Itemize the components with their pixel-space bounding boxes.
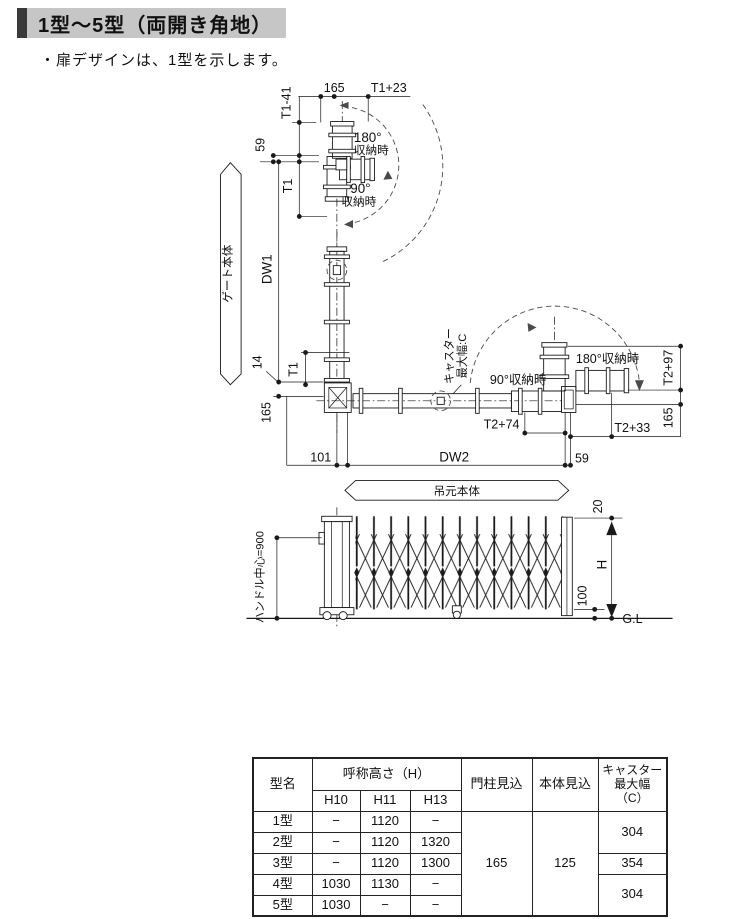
sub-header-h11: H11 (360, 790, 410, 811)
corner-post-plan (324, 383, 351, 413)
header-accent-bar (17, 8, 27, 38)
caster-label-line1: キャスター (443, 328, 456, 384)
body-depth-value: 125 (532, 811, 598, 916)
dim-14: 14 (251, 355, 265, 369)
caster-width-value: 304 (598, 811, 667, 853)
dim-165-left: 165 (260, 402, 274, 423)
h10-value: − (312, 832, 360, 853)
h11-value: − (360, 895, 410, 916)
col-header-body-depth: 本体見込 (532, 758, 598, 811)
hinge-body-banner: 吊元本体 (345, 480, 569, 500)
dim-dw1: DW1 (260, 254, 275, 284)
caster-width-value: 354 (598, 853, 667, 874)
h10-value: − (312, 811, 360, 832)
handle-icon (319, 532, 324, 544)
model-name: 1型 (253, 811, 312, 832)
model-name: 5型 (253, 895, 312, 916)
h13-value: 1320 (410, 832, 461, 853)
dim-20: 20 (591, 499, 605, 513)
header-bar: 1型～5型（両開き角地） (27, 8, 286, 38)
caster-header-line2: 最大幅 (614, 777, 650, 791)
col-header-height: 呼称高さ（H） (312, 758, 461, 790)
sub-header-h13: H13 (410, 790, 461, 811)
h10-value: 1030 (312, 895, 360, 916)
gate-body-label: ゲート本体 (220, 244, 234, 303)
dim-h: H (594, 560, 609, 570)
sub-header-h10: H10 (312, 790, 360, 811)
right-corner-mechanism: 90°収納時 180°収納時 (490, 317, 640, 394)
dim-t1plus23: T1+23 (371, 81, 407, 95)
caster-max-width-label: キャスター 最大幅:C (443, 328, 469, 394)
dim-165-top: 165 (324, 81, 345, 95)
label-180-stored-right: 180°収納時 (576, 352, 640, 366)
h11-value: 1120 (360, 832, 410, 853)
page-title: 1型～5型（両開き角地） (38, 9, 272, 38)
gate-lattice (355, 534, 561, 607)
dim-101: 101 (310, 451, 331, 465)
dim-t1minus41: T1-41 (279, 86, 293, 119)
elevation-view: ハンドル中心=900 20 H 100 G.L (246, 499, 672, 629)
hinge-body-label: 吊元本体 (434, 484, 481, 498)
h11-value: 1120 (360, 811, 410, 832)
dim-100: 100 (576, 585, 590, 606)
dim-t2plus74: T2+74 (484, 418, 520, 432)
dim-t2plus97: T2+97 (662, 350, 676, 386)
dim-chain-t2: T2+74 T2+33 (484, 393, 681, 439)
label-90-stored-top: 90° (350, 181, 370, 196)
section-header: 1型～5型（両開き角地） (17, 8, 286, 38)
h10-value: 1030 (312, 874, 360, 895)
dim-t1-lower: T1 (286, 362, 300, 377)
dim-handle-center: ハンドル中心=900 (253, 531, 266, 623)
dim-chain-top: 165 T1+23 (298, 81, 410, 122)
top-corner-mechanism: 180° 収納時 90° 収納時 (323, 101, 389, 248)
dim-59-right: 59 (575, 452, 589, 466)
dim-dw2: DW2 (439, 450, 469, 465)
table-row: 3型 − 1120 1300 354 (253, 853, 667, 874)
catalog-page: 1型～5型（両開き角地） ・扉デザインは、1型を示します。 (0, 0, 740, 919)
caster-label-line2: 最大幅:C (455, 334, 469, 379)
h13-value: − (410, 811, 461, 832)
design-note: ・扉デザインは、1型を示します。 (40, 49, 288, 70)
caster-header-line3: （C） (616, 791, 649, 805)
dim-165-right: 165 (662, 407, 676, 428)
dim-chain-left-upper: T1-41 59 T1 (253, 86, 327, 218)
h13-value: − (410, 874, 461, 895)
pillar-depth-value: 165 (461, 811, 532, 916)
dim-59-top: 59 (253, 138, 267, 152)
label-180-stored-top: 180° (354, 130, 382, 145)
h11-value: 1130 (360, 874, 410, 895)
col-header-pillar-depth: 門柱見込 (461, 758, 532, 811)
table-row: 4型 1030 1130 − 304 (253, 874, 667, 895)
label-180-stored-top-sub: 収納時 (354, 144, 389, 157)
horizontal-gate-plan (316, 386, 576, 414)
h13-value: 1300 (410, 853, 461, 874)
spec-table: 型名 呼称高さ（H） 門柱見込 本体見込 キャスター 最大幅 （C） H10 H… (252, 757, 668, 917)
table-row: 1型 − 1120 − 165 125 304 (253, 811, 667, 832)
label-90-stored-right: 90°収納時 (490, 373, 547, 387)
model-name: 4型 (253, 874, 312, 895)
dim-chain-dw1: DW1 (260, 159, 282, 384)
caster-header-line1: キャスター (602, 763, 662, 777)
col-header-caster-width: キャスター 最大幅 （C） (598, 758, 667, 811)
h13-value: − (410, 895, 461, 916)
ground-level-label: G.L (622, 612, 642, 626)
dim-t2plus33: T2+33 (614, 421, 650, 435)
h10-value: − (312, 853, 360, 874)
dim-t1-upper: T1 (281, 179, 295, 194)
technical-drawing: ゲート本体 165 T1+23 T1-41 59 T1 (0, 75, 740, 715)
model-name: 2型 (253, 832, 312, 853)
model-name: 3型 (253, 853, 312, 874)
label-90-stored-top-sub: 収納時 (341, 196, 376, 209)
col-header-model: 型名 (253, 758, 312, 811)
gate-body-banner: ゲート本体 (220, 163, 241, 385)
h11-value: 1120 (360, 853, 410, 874)
caster-width-value: 304 (598, 874, 667, 916)
